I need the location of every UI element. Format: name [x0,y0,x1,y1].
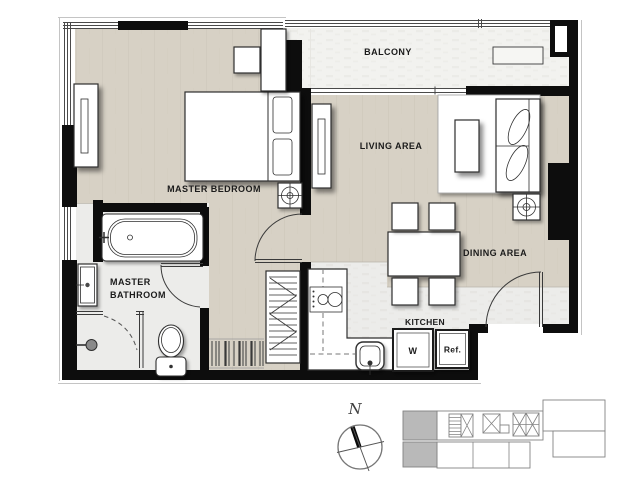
floor-plan-drawing: W Ref. [0,0,640,480]
floor-lamp [513,194,540,220]
toilet [156,325,186,376]
key-plan-unit-highlight [403,411,437,467]
sofa [496,99,540,192]
dining-chair [392,278,418,305]
balcony-railing [285,19,552,28]
tv-console-bedroom [74,84,98,167]
washer-box: W [393,329,433,371]
dining-chair [429,278,455,305]
linen-cabinet [266,271,300,363]
compass-north-label: N [347,400,362,418]
dining-chair [392,203,418,230]
bathtub [99,214,203,261]
balcony-corner-inset [555,26,567,52]
compass-rose: N [337,400,384,471]
room-label-dining-area: DINING AREA [463,248,527,258]
room-label-living-area: LIVING AREA [360,141,423,151]
shower-head [86,340,97,351]
tv-console-living [312,104,331,188]
room-label-kitchen: KITCHEN [405,317,445,327]
refrigerator-box: Ref. [436,330,469,368]
room-label-balcony: BALCONY [364,47,412,57]
dining-chair [429,203,455,230]
room-label-master-bathroom-1: MASTER [110,277,151,287]
vanity-sink [76,264,97,306]
washer-label: W [409,346,418,356]
refrigerator-label: Ref. [444,345,461,355]
dressing-table [261,29,286,91]
dressing-stool [234,47,260,73]
bed [185,92,300,181]
nightstand-lamp [278,183,302,208]
balcony-bench [493,47,543,64]
room-label-master-bathroom-2: BATHROOM [110,290,166,300]
kitchen-sink [356,342,384,375]
key-plan [403,400,605,468]
floor-plan-page: W Ref. [0,0,640,480]
dining-table [388,232,460,276]
coffee-table [455,120,479,172]
room-label-master-bedroom: MASTER BEDROOM [167,184,261,194]
